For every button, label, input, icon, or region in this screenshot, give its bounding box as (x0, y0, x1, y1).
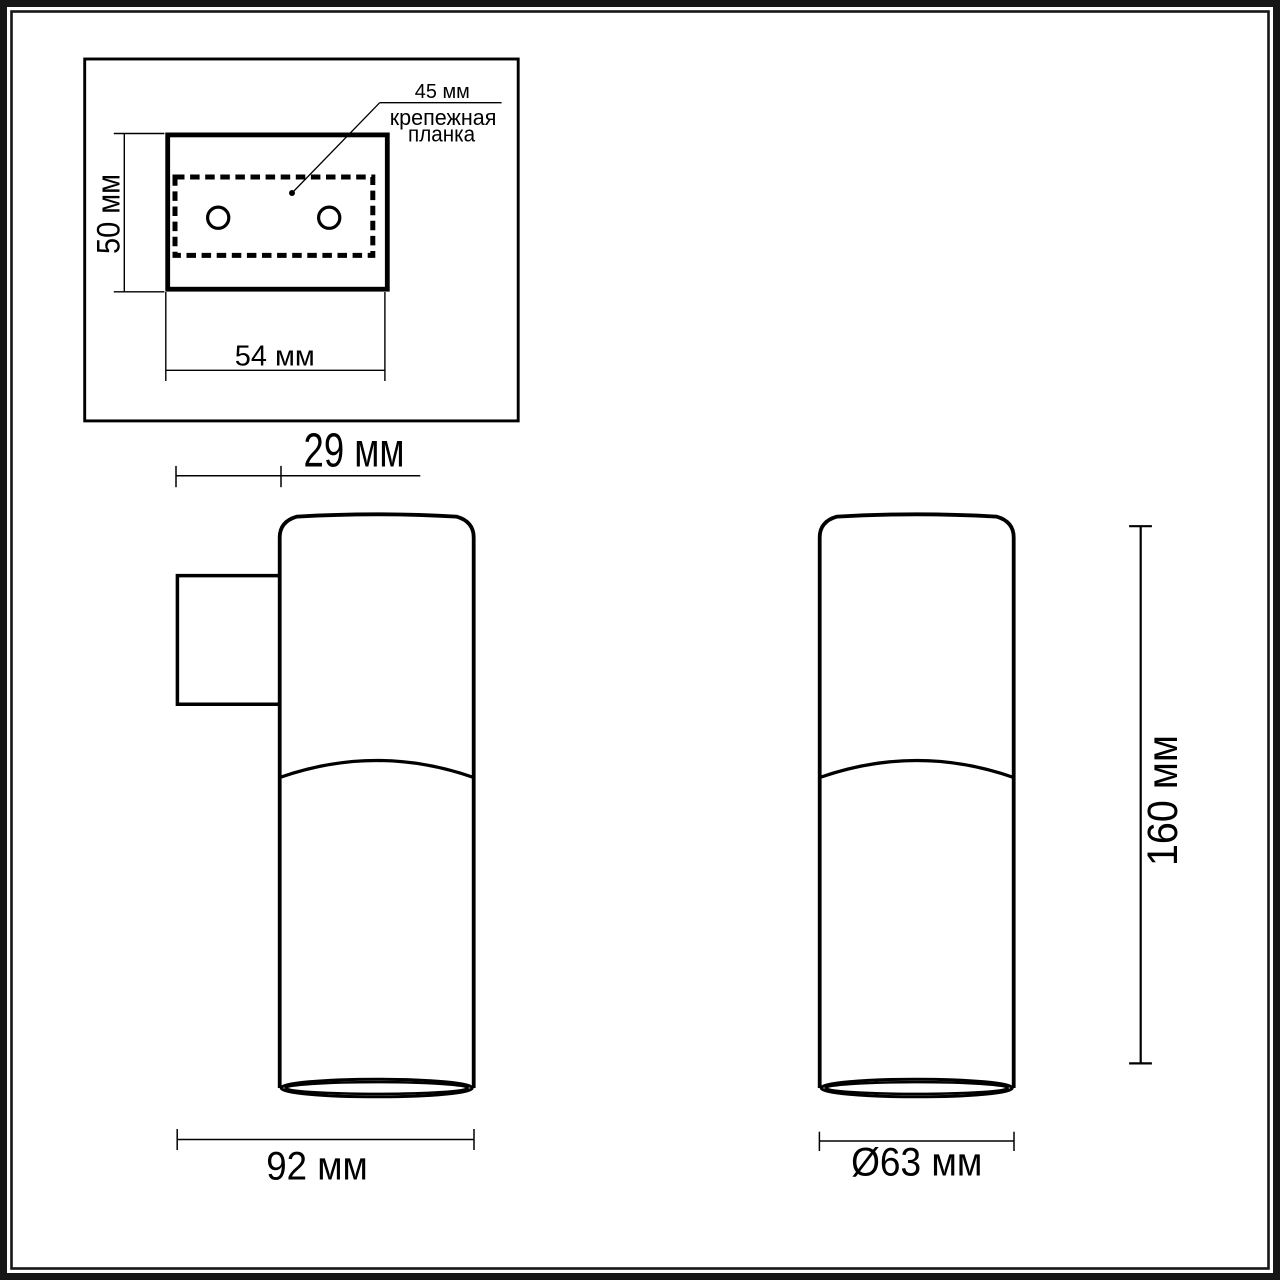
svg-text:50 мм: 50 мм (91, 174, 127, 254)
svg-text:45 мм: 45 мм (415, 81, 470, 103)
svg-text:92 мм: 92 мм (266, 1145, 368, 1189)
svg-text:планка: планка (408, 121, 476, 146)
svg-text:Ø63 мм: Ø63 мм (851, 1141, 982, 1185)
svg-text:54 мм: 54 мм (235, 341, 315, 373)
svg-text:29 мм: 29 мм (304, 425, 405, 478)
svg-text:160 мм: 160 мм (1140, 735, 1187, 866)
